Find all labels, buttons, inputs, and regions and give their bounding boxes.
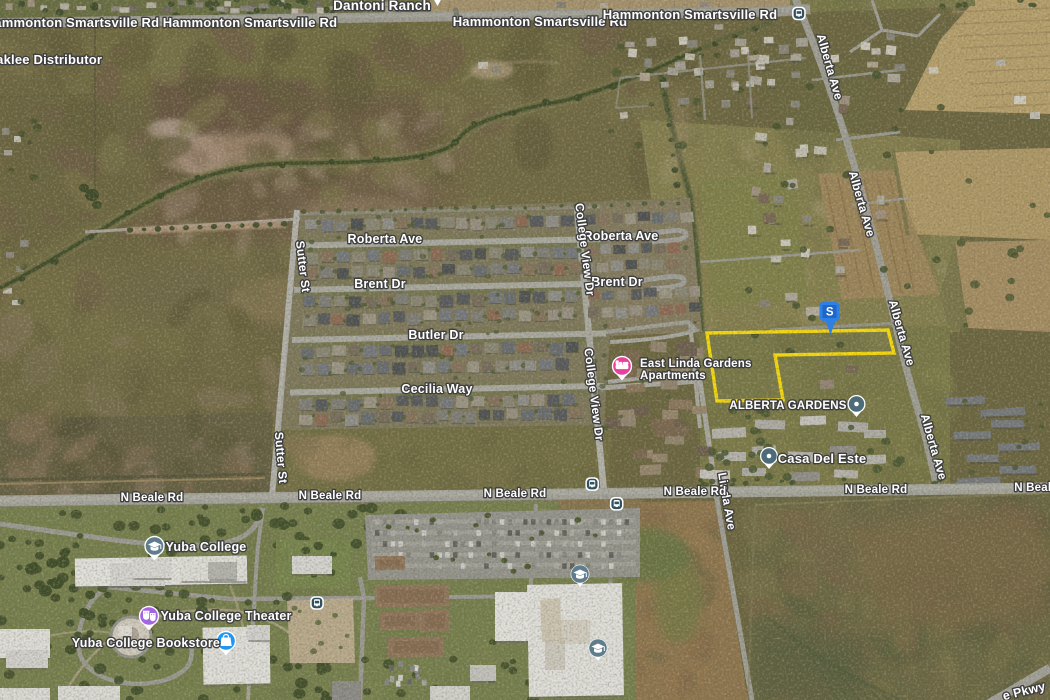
svg-text:Brent Dr: Brent Dr [354, 277, 406, 291]
svg-text:Oaklee Distributor: Oaklee Distributor [0, 52, 102, 67]
svg-text:N Beale Rd: N Beale Rd [121, 492, 184, 504]
svg-text:Apartments: Apartments [640, 370, 706, 382]
svg-text:N Beale R: N Beale R [1014, 482, 1050, 494]
svg-text:Dantoni Ranch: Dantoni Ranch [333, 0, 431, 13]
svg-text:East Linda Gardens: East Linda Gardens [640, 358, 752, 370]
svg-text:Hammonton Smartsville Rd: Hammonton Smartsville Rd [0, 15, 159, 30]
svg-text:Cecilia Way: Cecilia Way [401, 382, 472, 396]
svg-text:N Beale Rd: N Beale Rd [845, 484, 908, 496]
svg-text:Hammonton Smartsville Rd: Hammonton Smartsville Rd [163, 15, 338, 30]
svg-text:N Beale Rd: N Beale Rd [299, 490, 362, 502]
svg-text:Yuba College Bookstore: Yuba College Bookstore [72, 636, 220, 650]
svg-text:Hammonton Smartsville Rd: Hammonton Smartsville Rd [453, 14, 628, 29]
svg-text:Yuba College: Yuba College [166, 540, 247, 554]
svg-text:Brent Dr: Brent Dr [591, 275, 643, 289]
svg-text:Hammonton Smartsville Rd: Hammonton Smartsville Rd [603, 7, 778, 22]
svg-text:Roberta Ave: Roberta Ave [584, 229, 659, 243]
svg-text:N Beale Rd: N Beale Rd [664, 486, 727, 498]
svg-text:ALBERTA GARDENS: ALBERTA GARDENS [729, 400, 846, 412]
svg-text:N Beale Rd: N Beale Rd [484, 488, 547, 500]
svg-text:Yuba College Theater: Yuba College Theater [160, 609, 291, 623]
svg-text:Butler Dr: Butler Dr [408, 328, 463, 342]
svg-text:S: S [826, 307, 834, 319]
svg-text:Roberta Ave: Roberta Ave [348, 232, 423, 246]
svg-text:Casa Del Este: Casa Del Este [778, 451, 867, 466]
